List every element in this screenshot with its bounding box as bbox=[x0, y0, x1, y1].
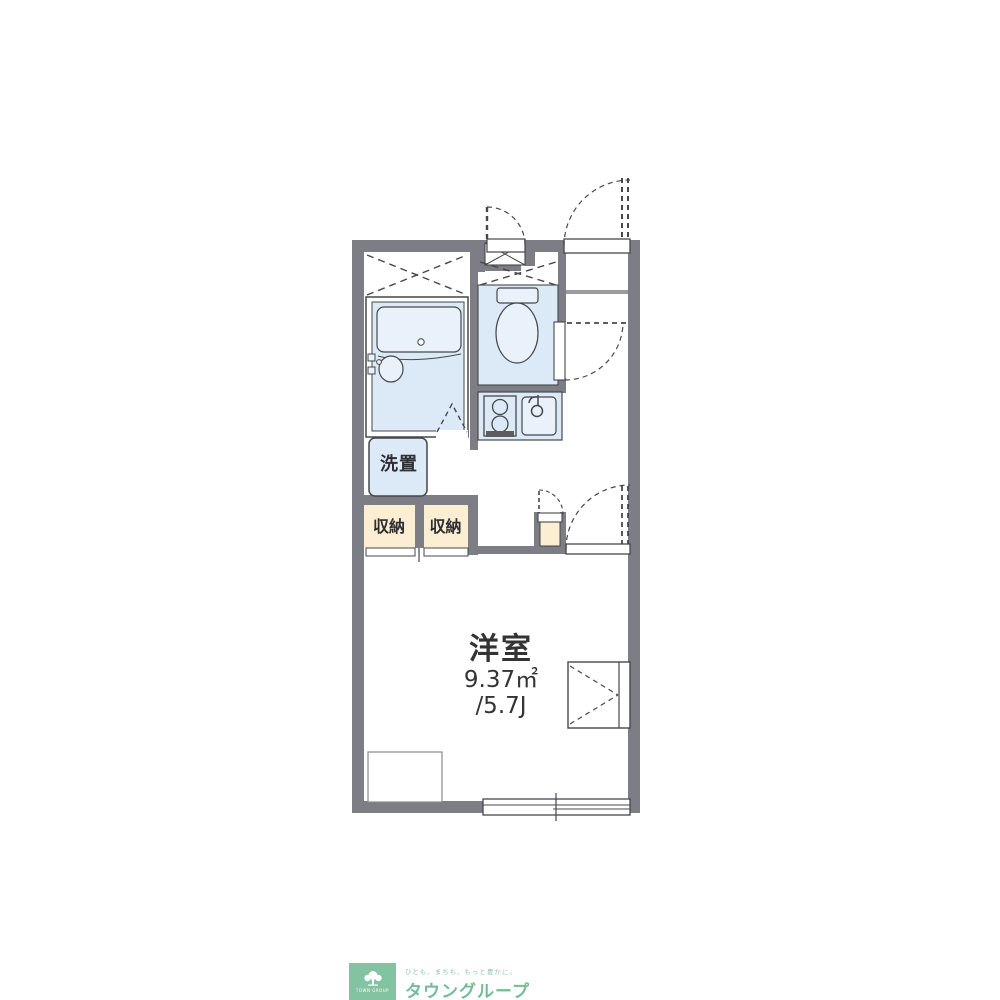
toilet-bowl bbox=[496, 303, 538, 363]
closet-right-label: 収納 bbox=[423, 519, 468, 535]
main-room-name: 洋室 bbox=[420, 633, 582, 667]
tree-icon bbox=[363, 970, 383, 987]
main-room-label-block: 洋室 9.37㎡ /5.7J bbox=[420, 633, 582, 719]
main-room-area-jo: /5.7J bbox=[420, 693, 582, 719]
logo-brand-name: タウングループ bbox=[405, 977, 530, 1000]
closet-sliding-door bbox=[366, 548, 415, 556]
town-group-logo-icon: TOWN GROUP bbox=[349, 963, 396, 1000]
entry-step bbox=[566, 290, 628, 294]
bathtub bbox=[377, 307, 461, 352]
stove-base bbox=[486, 431, 514, 437]
bathtub-drain bbox=[418, 339, 424, 345]
desk bbox=[368, 752, 442, 802]
small-exterior-door bbox=[487, 207, 525, 252]
washer-space-label: 洗置 bbox=[372, 456, 426, 474]
main-room-area-m2: 9.37㎡ bbox=[420, 667, 582, 693]
closet-left-label: 収納 bbox=[363, 519, 415, 535]
wash-basin bbox=[379, 356, 403, 382]
bath-door-threshold bbox=[436, 430, 468, 438]
kitchen bbox=[478, 392, 562, 440]
footer-logo: TOWN GROUP ひとも、まちも、もっと豊かに。 タウングループ bbox=[349, 963, 530, 1000]
floorplan-drawing bbox=[340, 170, 650, 830]
toilet-tank bbox=[497, 288, 538, 303]
closet-sliding-door bbox=[424, 548, 468, 556]
town-group-logo-text: TOWN GROUP bbox=[356, 988, 389, 993]
floorplan-page: 洗置 収納 収納 洋室 9.37㎡ /5.7J TOWN GROUP ひとも、ま… bbox=[0, 0, 1000, 1000]
logo-tagline: ひとも、まちも、もっと豊かに。 bbox=[405, 966, 530, 976]
